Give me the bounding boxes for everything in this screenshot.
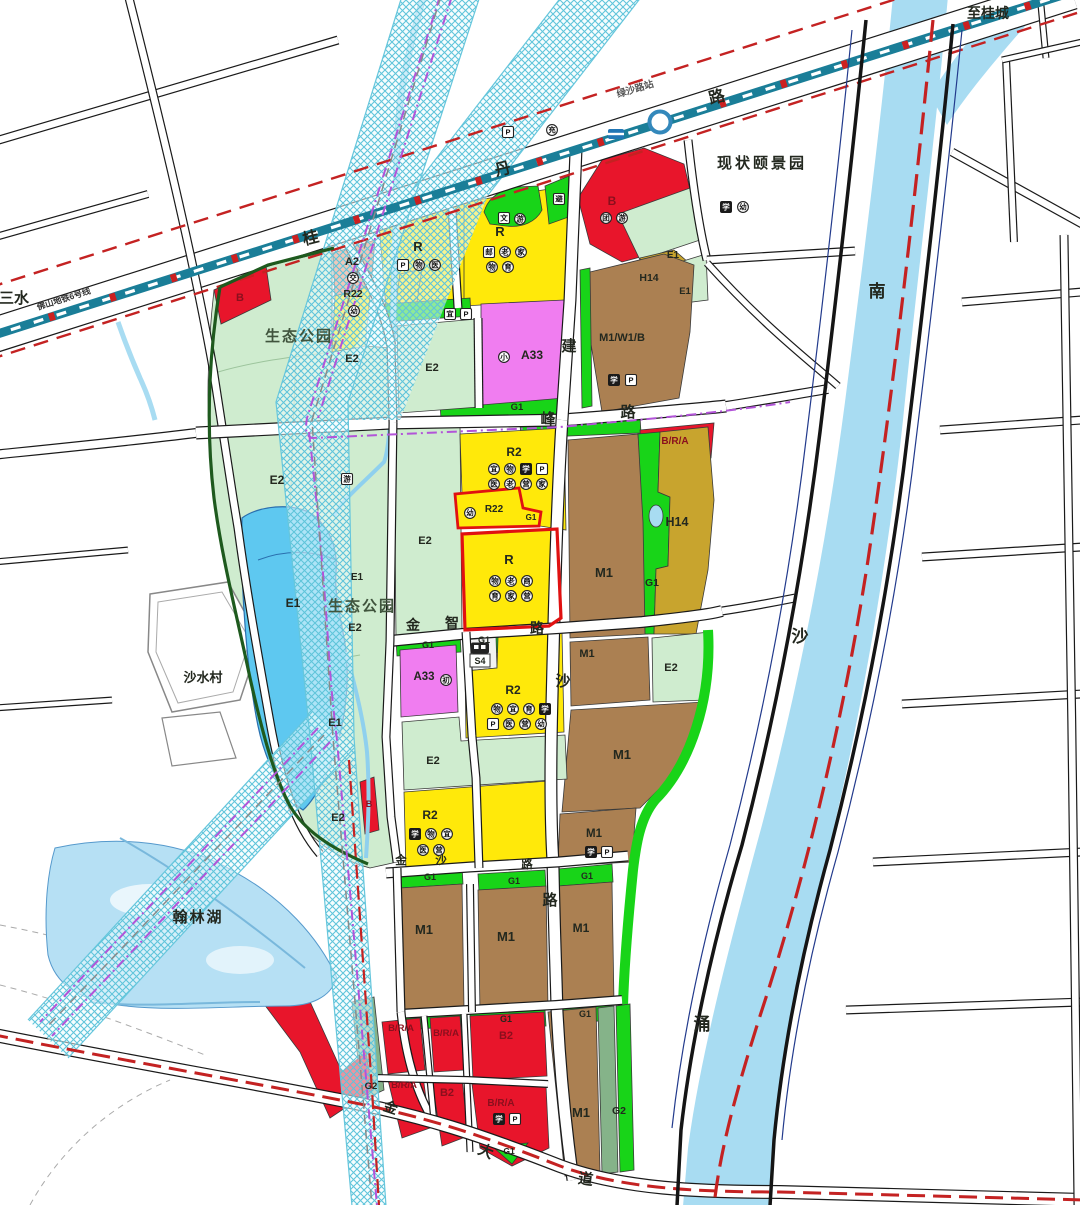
zone-label: E1 <box>286 596 301 610</box>
school-facility-icon: 学 <box>410 829 421 840</box>
svg-text:幼: 幼 <box>350 306 358 316</box>
svg-text:宜: 宜 <box>443 829 451 839</box>
svg-text:家: 家 <box>517 247 525 257</box>
svg-text:幼: 幼 <box>739 202 747 212</box>
zone-label: R2 <box>506 445 522 459</box>
zone-label: M1 <box>415 922 433 937</box>
road-char: 路 <box>530 620 545 636</box>
facility-icon: 物 <box>487 262 498 273</box>
zone-label: M1 <box>573 921 590 935</box>
road-char: 智 <box>444 615 459 631</box>
road-char: 路 <box>620 403 636 421</box>
zone-label: M1 <box>613 747 631 762</box>
zone-label: R <box>495 224 505 239</box>
facility-icon: P <box>503 127 514 138</box>
facility-icon: 育 <box>503 262 514 273</box>
road-char: 路 <box>542 891 558 909</box>
facility-icon: 医 <box>418 845 429 856</box>
label-hanlin-lake: 翰林湖 <box>172 908 223 926</box>
facility-icon: 避 <box>554 194 565 205</box>
facility-icon: 营 <box>520 719 531 730</box>
facility-icon: 家 <box>516 247 527 258</box>
zone-label: H14 <box>666 515 689 529</box>
school-facility-icon: 学 <box>609 375 620 386</box>
zone-m1 <box>478 886 548 1012</box>
zone-label: B/R/A <box>661 436 688 447</box>
svg-text:学: 学 <box>587 847 595 857</box>
school-facility-icon: 学 <box>721 202 732 213</box>
svg-text:学: 学 <box>541 704 549 714</box>
label-yijingyuan: 现状颐景园 <box>717 154 807 172</box>
facility-icon: 宜 <box>442 829 453 840</box>
zone-m1 <box>558 882 614 1008</box>
map-canvas: 至三水佛山地铁6号线绿沙路站至桂城现状颐景园生态公园生态公园沙水村翰林湖南沙涌桂… <box>0 0 1080 1205</box>
svg-text:学: 学 <box>495 1114 503 1124</box>
facility-icon: 幼 <box>465 508 476 519</box>
zone-label: G2 <box>612 1105 626 1117</box>
label-river-sha: 沙 <box>792 627 809 646</box>
svg-text:交: 交 <box>349 273 357 283</box>
zone-label: B <box>366 799 373 809</box>
svg-text:P: P <box>490 720 495 729</box>
svg-text:老: 老 <box>505 479 514 489</box>
road-surface <box>397 868 401 1012</box>
facility-icon: 宜 <box>445 309 456 320</box>
svg-text:营: 营 <box>523 591 531 601</box>
facility-icon: 邮 <box>484 247 495 258</box>
zone-label: B/R/A <box>487 1098 514 1109</box>
svg-text:文: 文 <box>500 213 508 223</box>
zone-label: A33 <box>521 348 543 362</box>
svg-text:老: 老 <box>506 576 515 586</box>
zone-label: R22 <box>343 288 362 300</box>
road-char: 沙 <box>435 854 447 867</box>
zone-label: B <box>236 292 244 304</box>
svg-text:商: 商 <box>523 576 531 586</box>
facility-icon: 小 <box>499 352 510 363</box>
facility-icon: 商 <box>522 576 533 587</box>
facility-icon: 游 <box>515 214 526 225</box>
zone-label: G1 <box>645 577 659 589</box>
zone-label: G2 <box>365 1081 378 1092</box>
zone-label: M1 <box>572 1105 590 1120</box>
zone-label: G1 <box>579 1009 591 1019</box>
facility-icon: P <box>488 719 499 730</box>
svg-text:医: 医 <box>505 720 513 729</box>
zone-label: R2 <box>422 808 438 822</box>
facility-icon: 家 <box>506 591 517 602</box>
zone-label: B2 <box>499 1030 513 1042</box>
facility-icon: 老 <box>505 479 516 490</box>
zone-label: G1 <box>508 876 520 886</box>
zone-label: E1 <box>679 286 691 297</box>
zone-label: G1 <box>511 402 524 413</box>
label-eco-park-2: 生态公园 <box>328 597 396 615</box>
facility-icon: 营 <box>434 845 445 856</box>
svg-text:老: 老 <box>500 247 509 257</box>
zone-label: B2 <box>440 1087 454 1099</box>
zone-label: G1 <box>526 513 537 522</box>
facility-icon: 育 <box>524 704 535 715</box>
strip-g1 <box>580 268 592 408</box>
road-char: 沙 <box>555 673 570 690</box>
planning-map: 至三水佛山地铁6号线绿沙路站至桂城现状颐景园生态公园生态公园沙水村翰林湖南沙涌桂… <box>0 0 1080 1205</box>
label-to-sanshui: 至三水 <box>0 289 30 307</box>
facility-icon: P <box>398 260 409 271</box>
svg-text:营: 营 <box>521 719 529 729</box>
facility-icon: 物 <box>492 704 503 715</box>
zone-label: B/R/A <box>388 1023 414 1034</box>
metro-station-circle <box>650 112 671 133</box>
facility-icon: 宜 <box>508 704 519 715</box>
zone-label: R2 <box>505 683 521 697</box>
facility-icon: 营 <box>521 479 532 490</box>
svg-text:P: P <box>512 1115 517 1124</box>
facility-icon: 医 <box>489 479 500 490</box>
label-river-chong: 涌 <box>694 1015 711 1034</box>
zone-label: E2 <box>270 473 285 487</box>
svg-text:医: 医 <box>490 480 498 489</box>
svg-text:P: P <box>463 310 468 319</box>
svg-text:学: 学 <box>522 464 530 474</box>
zone-label: E2 <box>348 622 361 634</box>
zone-label: G1 <box>581 871 593 881</box>
facility-icon: 医 <box>430 260 441 271</box>
school-facility-icon: 学 <box>521 464 532 475</box>
zone-label: E2 <box>664 662 677 674</box>
svg-text:游: 游 <box>516 214 524 224</box>
zone-label: S4 <box>474 656 485 666</box>
facility-icon: 老 <box>506 576 517 587</box>
zone-m1 <box>400 884 464 1012</box>
svg-text:幼: 幼 <box>537 719 545 729</box>
facility-icon: 营 <box>522 591 533 602</box>
facility-icon: 初 <box>441 675 452 686</box>
facility-icon: 医 <box>504 719 515 730</box>
road-char: 峰 <box>540 410 556 428</box>
svg-text:P: P <box>628 376 633 385</box>
zone-label: B/R/A <box>391 1080 417 1091</box>
zone-label: G1 <box>500 1014 512 1024</box>
svg-text:物: 物 <box>415 260 423 270</box>
facility-icon: 育 <box>490 591 501 602</box>
zone-g2 <box>598 1006 618 1174</box>
school-facility-icon: 学 <box>494 1114 505 1125</box>
zone-label: G1 <box>424 872 436 882</box>
svg-text:学: 学 <box>722 202 730 212</box>
zone-label: E2 <box>426 755 439 767</box>
svg-text:物: 物 <box>488 262 496 272</box>
facility-icon: 游 <box>617 213 628 224</box>
zone-label: B/R/A <box>433 1028 459 1039</box>
svg-text:幼: 幼 <box>466 508 474 518</box>
svg-text:医: 医 <box>419 846 427 855</box>
svg-text:宜: 宜 <box>490 464 498 474</box>
svg-text:物: 物 <box>506 464 514 474</box>
road-surface <box>470 884 472 1012</box>
svg-text:宜: 宜 <box>509 704 517 714</box>
zone-label: G1 <box>503 1146 515 1156</box>
svg-text:避: 避 <box>555 194 563 204</box>
school-facility-icon: 学 <box>540 704 551 715</box>
zone-label: M1 <box>586 828 603 840</box>
svg-text:团: 团 <box>602 214 610 223</box>
zone-m1 <box>568 434 648 638</box>
facility-icon: P <box>461 309 472 320</box>
svg-text:宜: 宜 <box>446 309 454 319</box>
svg-text:P: P <box>505 128 510 137</box>
label-shashui-village: 沙水村 <box>183 670 222 685</box>
facility-icon: 幼 <box>349 306 360 317</box>
svg-text:家: 家 <box>538 479 546 489</box>
pond <box>649 505 663 527</box>
facility-icon: 老 <box>500 247 511 258</box>
zone-label: M1/W1/B <box>599 332 645 344</box>
facility-icon: P <box>602 847 613 858</box>
svg-text:育: 育 <box>491 591 499 601</box>
zone-label: H14 <box>639 272 658 284</box>
svg-text:营: 营 <box>435 845 443 855</box>
facility-icon: 物 <box>414 260 425 271</box>
bus-station-icon <box>471 643 489 654</box>
svg-text:P: P <box>604 848 609 857</box>
svg-text:物: 物 <box>491 576 499 586</box>
zone-label: R <box>504 552 514 567</box>
svg-text:育: 育 <box>525 704 533 714</box>
label-to-guicheng: 至桂城 <box>967 5 1009 21</box>
road-char: 路 <box>521 857 533 871</box>
svg-text:学: 学 <box>610 375 618 385</box>
metro-entrance-icon <box>608 129 624 139</box>
zone-label: E2 <box>331 812 344 824</box>
zone-label: E1 <box>351 572 364 583</box>
svg-text:游: 游 <box>618 213 626 223</box>
svg-text:营: 营 <box>522 479 530 489</box>
zone-label: E2 <box>418 535 431 547</box>
svg-text:医: 医 <box>431 261 439 270</box>
svg-text:充: 充 <box>548 125 556 135</box>
zone-label: R <box>413 239 423 254</box>
facility-icon: 宜 <box>489 464 500 475</box>
svg-text:育: 育 <box>504 262 512 272</box>
zone-label: G1 <box>422 640 434 650</box>
zone-label: A2 <box>345 256 359 268</box>
facility-icon: 物 <box>426 829 437 840</box>
zone-label: E1 <box>328 717 341 729</box>
zone-label: M1 <box>579 648 594 660</box>
zone-label: E1 <box>667 250 680 261</box>
svg-text:初: 初 <box>442 675 450 685</box>
facility-icon: 交 <box>348 273 359 284</box>
zone-label: E2 <box>425 362 438 374</box>
svg-text:游: 游 <box>343 474 351 484</box>
road-surface <box>478 318 479 408</box>
label-eco-park-1: 生态公园 <box>265 327 333 345</box>
zone-bra <box>430 1016 464 1072</box>
zone-label: M1 <box>595 565 613 580</box>
zone-label: E2 <box>345 353 358 365</box>
svg-text:物: 物 <box>427 829 435 839</box>
school-facility-icon: 学 <box>586 847 597 858</box>
road-char: 金 <box>394 853 407 867</box>
facility-icon: 充 <box>547 125 558 136</box>
svg-text:小: 小 <box>500 352 508 362</box>
svg-text:P: P <box>539 465 544 474</box>
svg-text:P: P <box>400 261 405 270</box>
zone-label: A33 <box>413 671 434 683</box>
svg-text:家: 家 <box>507 591 515 601</box>
facility-icon: 幼 <box>738 202 749 213</box>
facility-icon: 物 <box>490 576 501 587</box>
facility-icon: P <box>626 375 637 386</box>
road-char: 道 <box>577 1169 594 1189</box>
hanlin-island <box>206 946 274 974</box>
facility-icon: 家 <box>537 479 548 490</box>
zone-label: M1 <box>497 929 515 944</box>
zone-e2 <box>394 424 462 636</box>
facility-icon: 物 <box>505 464 516 475</box>
label-river-nan: 南 <box>869 281 886 301</box>
facility-icon: 文 <box>499 213 510 224</box>
svg-text:物: 物 <box>493 704 501 714</box>
facility-icon: P <box>510 1114 521 1125</box>
zone-label: B <box>608 194 617 208</box>
svg-text:学: 学 <box>411 829 419 839</box>
zone-label: R22 <box>485 504 504 515</box>
facility-icon: 幼 <box>536 719 547 730</box>
road-char: 建 <box>561 337 577 355</box>
facility-icon: 游 <box>342 474 353 485</box>
facility-icon: 团 <box>601 213 612 224</box>
road-char: 金 <box>405 617 421 633</box>
svg-text:邮: 邮 <box>485 247 493 257</box>
facility-icon: P <box>537 464 548 475</box>
